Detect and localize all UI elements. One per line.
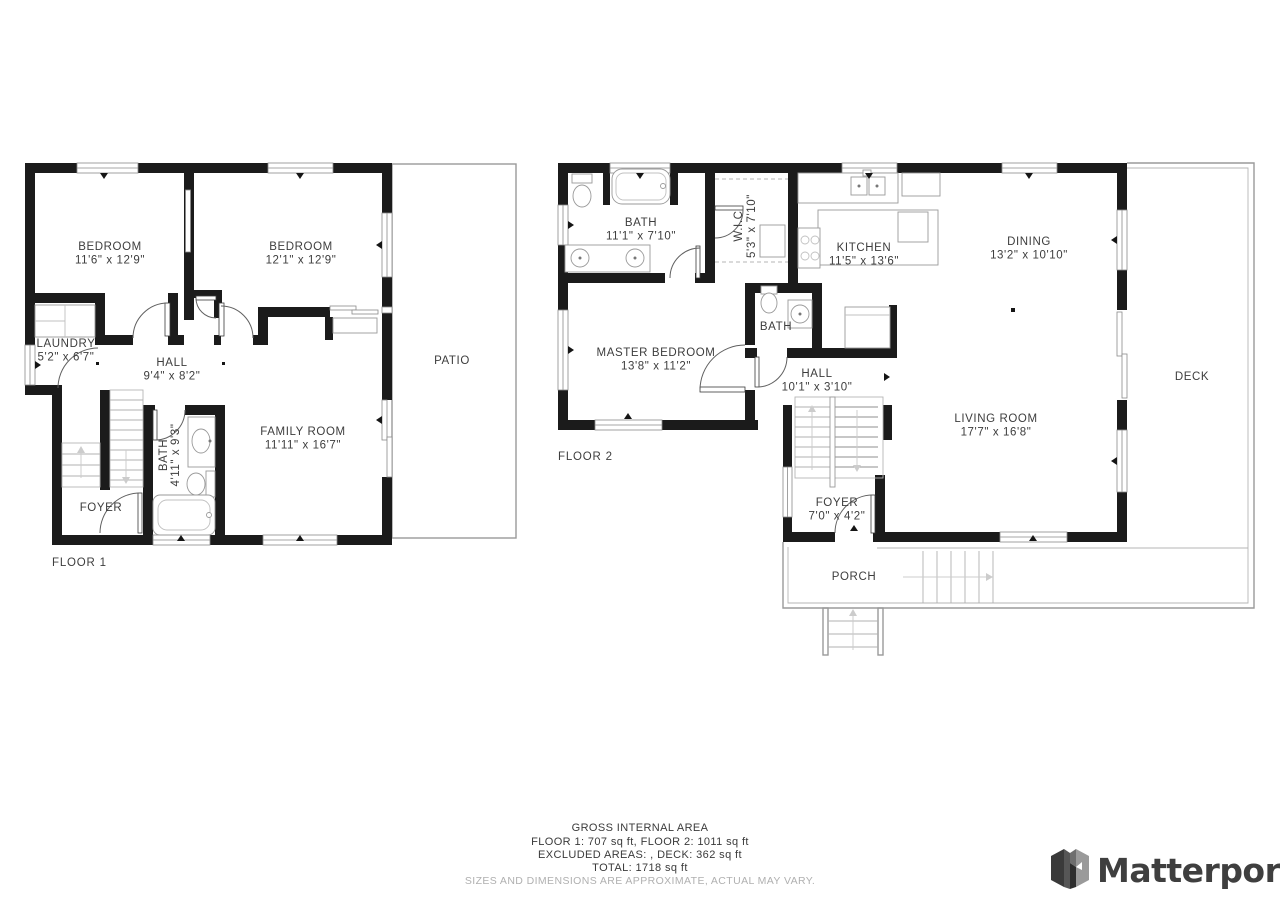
laundry-label: LAUNDRY xyxy=(37,338,96,350)
kitchen-dims: 11'5" x 13'6" xyxy=(829,256,899,268)
cabinet xyxy=(845,307,890,348)
kitchen-label: KITCHEN xyxy=(837,242,892,254)
living-room-dims: 17'7" x 16'8" xyxy=(961,427,1032,439)
bedroom1-label: BEDROOM xyxy=(78,241,142,253)
brand-logo: Matterport xyxy=(1051,849,1280,890)
bath1-label: BATH xyxy=(158,439,170,471)
total-area-line: TOTAL: 1718 sq ft xyxy=(592,862,688,874)
laundry-dims: 5'2" x 6'7" xyxy=(38,352,95,364)
hall2-label: HALL xyxy=(801,368,832,380)
foyer2-dims: 7'0" x 4'2" xyxy=(809,511,866,523)
toilet-bowl xyxy=(187,473,205,495)
floor1-plan: BEDROOM 11'6" x 12'9" BEDROOM 12'1" x 12… xyxy=(25,163,516,569)
floor2-title: FLOOR 2 xyxy=(558,451,613,463)
toilet-tank xyxy=(206,471,215,497)
patio-outline xyxy=(392,164,516,538)
bedroom2-label: BEDROOM xyxy=(269,241,333,253)
cooktop xyxy=(798,228,820,268)
foyer2-label: FOYER xyxy=(816,497,859,509)
toilet-bowl xyxy=(573,185,591,207)
floor2-stairs xyxy=(795,397,883,487)
matterport-icon xyxy=(1051,849,1089,889)
stair-divider xyxy=(830,397,835,487)
bath2-label: BATH xyxy=(625,217,657,229)
bedroom1-dims: 11'6" x 12'9" xyxy=(75,255,145,267)
floorplan-page: BEDROOM 11'6" x 12'9" BEDROOM 12'1" x 12… xyxy=(0,0,1280,905)
floorplan-canvas: BEDROOM 11'6" x 12'9" BEDROOM 12'1" x 12… xyxy=(0,0,1280,905)
wic-dims: 5'3" x 7'10" xyxy=(746,194,758,258)
hall1-label: HALL xyxy=(156,357,187,369)
bath1-dims: 4'11" x 9'3" xyxy=(170,423,182,486)
matterport-wordmark: Matterport xyxy=(1097,851,1280,890)
hall2-dims: 10'1" x 3'10" xyxy=(782,382,853,394)
footer: GROSS INTERNAL AREA FLOOR 1: 707 sq ft, … xyxy=(465,822,815,887)
porch-label: PORCH xyxy=(832,571,877,583)
patio-label: PATIO xyxy=(434,355,470,367)
excluded-areas-line: EXCLUDED AREAS: , DECK: 362 sq ft xyxy=(538,849,742,861)
floor1-bath-fixtures xyxy=(153,417,215,535)
living-room-label: LIVING ROOM xyxy=(954,413,1037,425)
family-room-dims: 11'11" x 16'7" xyxy=(265,440,341,452)
floor-areas-line: FLOOR 1: 707 sq ft, FLOOR 2: 1011 sq ft xyxy=(531,836,749,848)
foyer1-label: FOYER xyxy=(80,502,123,514)
toilet-bowl xyxy=(761,293,777,313)
toilet-tank xyxy=(572,174,592,183)
bath2-dims: 11'1" x 7'10" xyxy=(606,231,676,243)
gross-internal-area-title: GROSS INTERNAL AREA xyxy=(572,822,709,834)
deck-label: DECK xyxy=(1175,371,1209,383)
floor1-title: FLOOR 1 xyxy=(52,557,107,569)
dining-dims: 13'2" x 10'10" xyxy=(990,250,1068,262)
wic-label: W.I.C xyxy=(733,210,745,241)
fridge xyxy=(902,173,940,196)
dining-label: DINING xyxy=(1007,236,1051,248)
bath-small-label: BATH xyxy=(760,321,792,333)
family-room-label: FAMILY ROOM xyxy=(260,426,345,438)
floor2-plan: BATH 11'1" x 7'10" W.I.C 5'3" x 7'10" KI… xyxy=(558,163,1254,655)
master-bedroom-dims: 13'8" x 11'2" xyxy=(621,361,691,373)
floor1-laundry-cabinets xyxy=(35,305,95,337)
hall1-dims: 9'4" x 8'2" xyxy=(144,371,201,383)
bedroom2-closet-shelf xyxy=(333,318,377,333)
disclaimer-text: SIZES AND DIMENSIONS ARE APPROXIMATE, AC… xyxy=(465,875,815,887)
master-bedroom-label: MASTER BEDROOM xyxy=(597,347,716,359)
bedroom2-dims: 12'1" x 12'9" xyxy=(266,255,337,267)
